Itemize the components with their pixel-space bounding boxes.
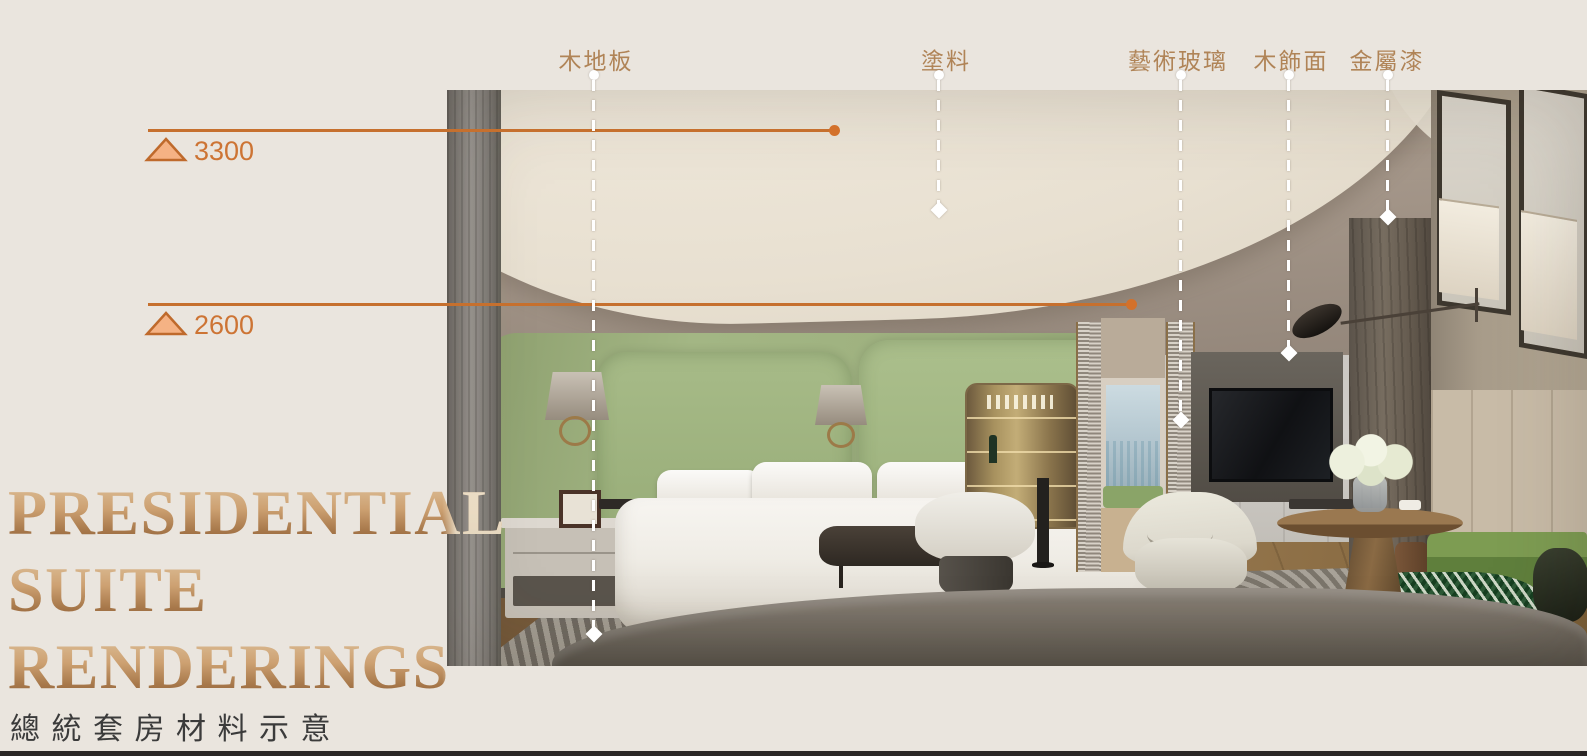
callout-line-metallic-paint: [1386, 80, 1389, 211]
callout-line-paint: [937, 80, 940, 204]
elevation-value-2600: 2600: [194, 310, 254, 341]
callout-line-art-glass: [1179, 80, 1182, 414]
suite-rendering-photo: [447, 90, 1587, 666]
callout-line-wood-veneer: [1287, 80, 1290, 347]
elevation-value-3300: 3300: [194, 136, 254, 167]
photo-vignette: [447, 90, 1587, 666]
presentation-slide: 3300 2600 木地板 塗料 藝術玻璃 木飾面 金屬漆 PRESIDENTI…: [0, 0, 1587, 756]
title-line-2: SUITE: [8, 551, 506, 628]
page-subtitle: 總 統 套 房 材 料 示 意: [10, 704, 333, 748]
callout-line-wood-floor: [592, 80, 595, 628]
elevation-line-2600: [148, 303, 1133, 306]
title-line-3: RENDERINGS: [8, 628, 506, 705]
page-title: PRESIDENTIALSUITERENDERINGS: [8, 474, 506, 705]
elevation-triangle-icon: [144, 310, 188, 337]
material-label-paint: 塗料: [921, 42, 971, 76]
elevation-triangle-icon: [144, 136, 188, 163]
title-line-1: PRESIDENTIAL: [8, 474, 506, 551]
footer-bar: [0, 751, 1587, 756]
elevation-line-3300: [148, 129, 836, 132]
